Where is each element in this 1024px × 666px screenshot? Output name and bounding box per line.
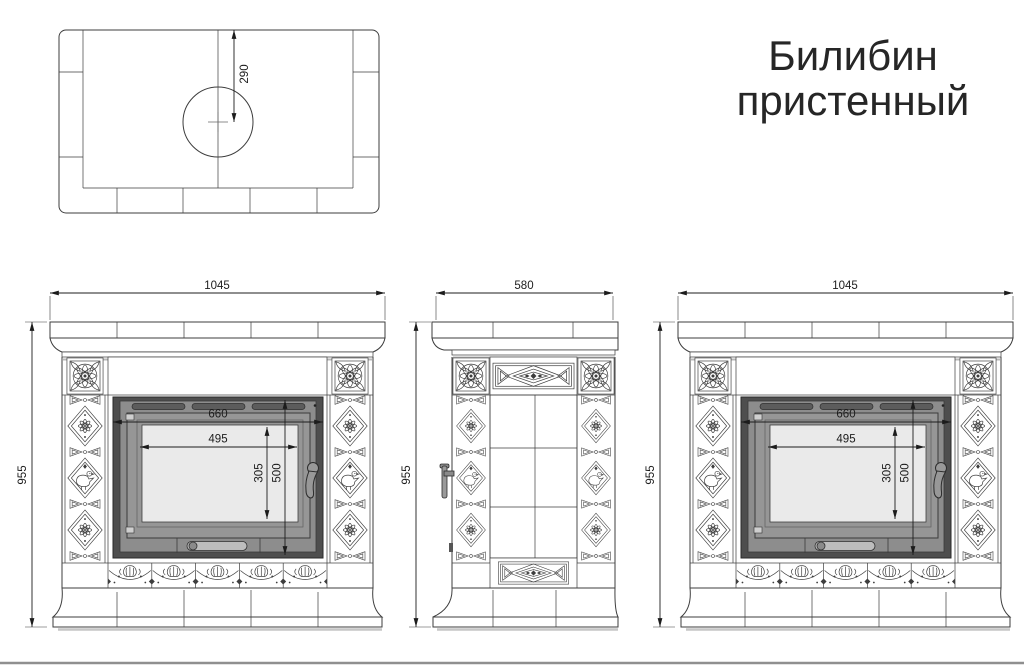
- title-line-1: Билибин: [768, 32, 938, 79]
- front-view-left: [17, 280, 385, 630]
- front-view-right: [645, 280, 1013, 630]
- side-view: [401, 280, 618, 630]
- title-block: Билибин пристенный: [737, 32, 970, 124]
- plan-view: [59, 30, 379, 213]
- technical-drawing-sheet: 660 495 305 500 1045 955: [0, 0, 1024, 666]
- drawing-canvas: 660 495 305 500 1045 955: [0, 0, 1024, 666]
- title-line-2: пристенный: [737, 77, 970, 124]
